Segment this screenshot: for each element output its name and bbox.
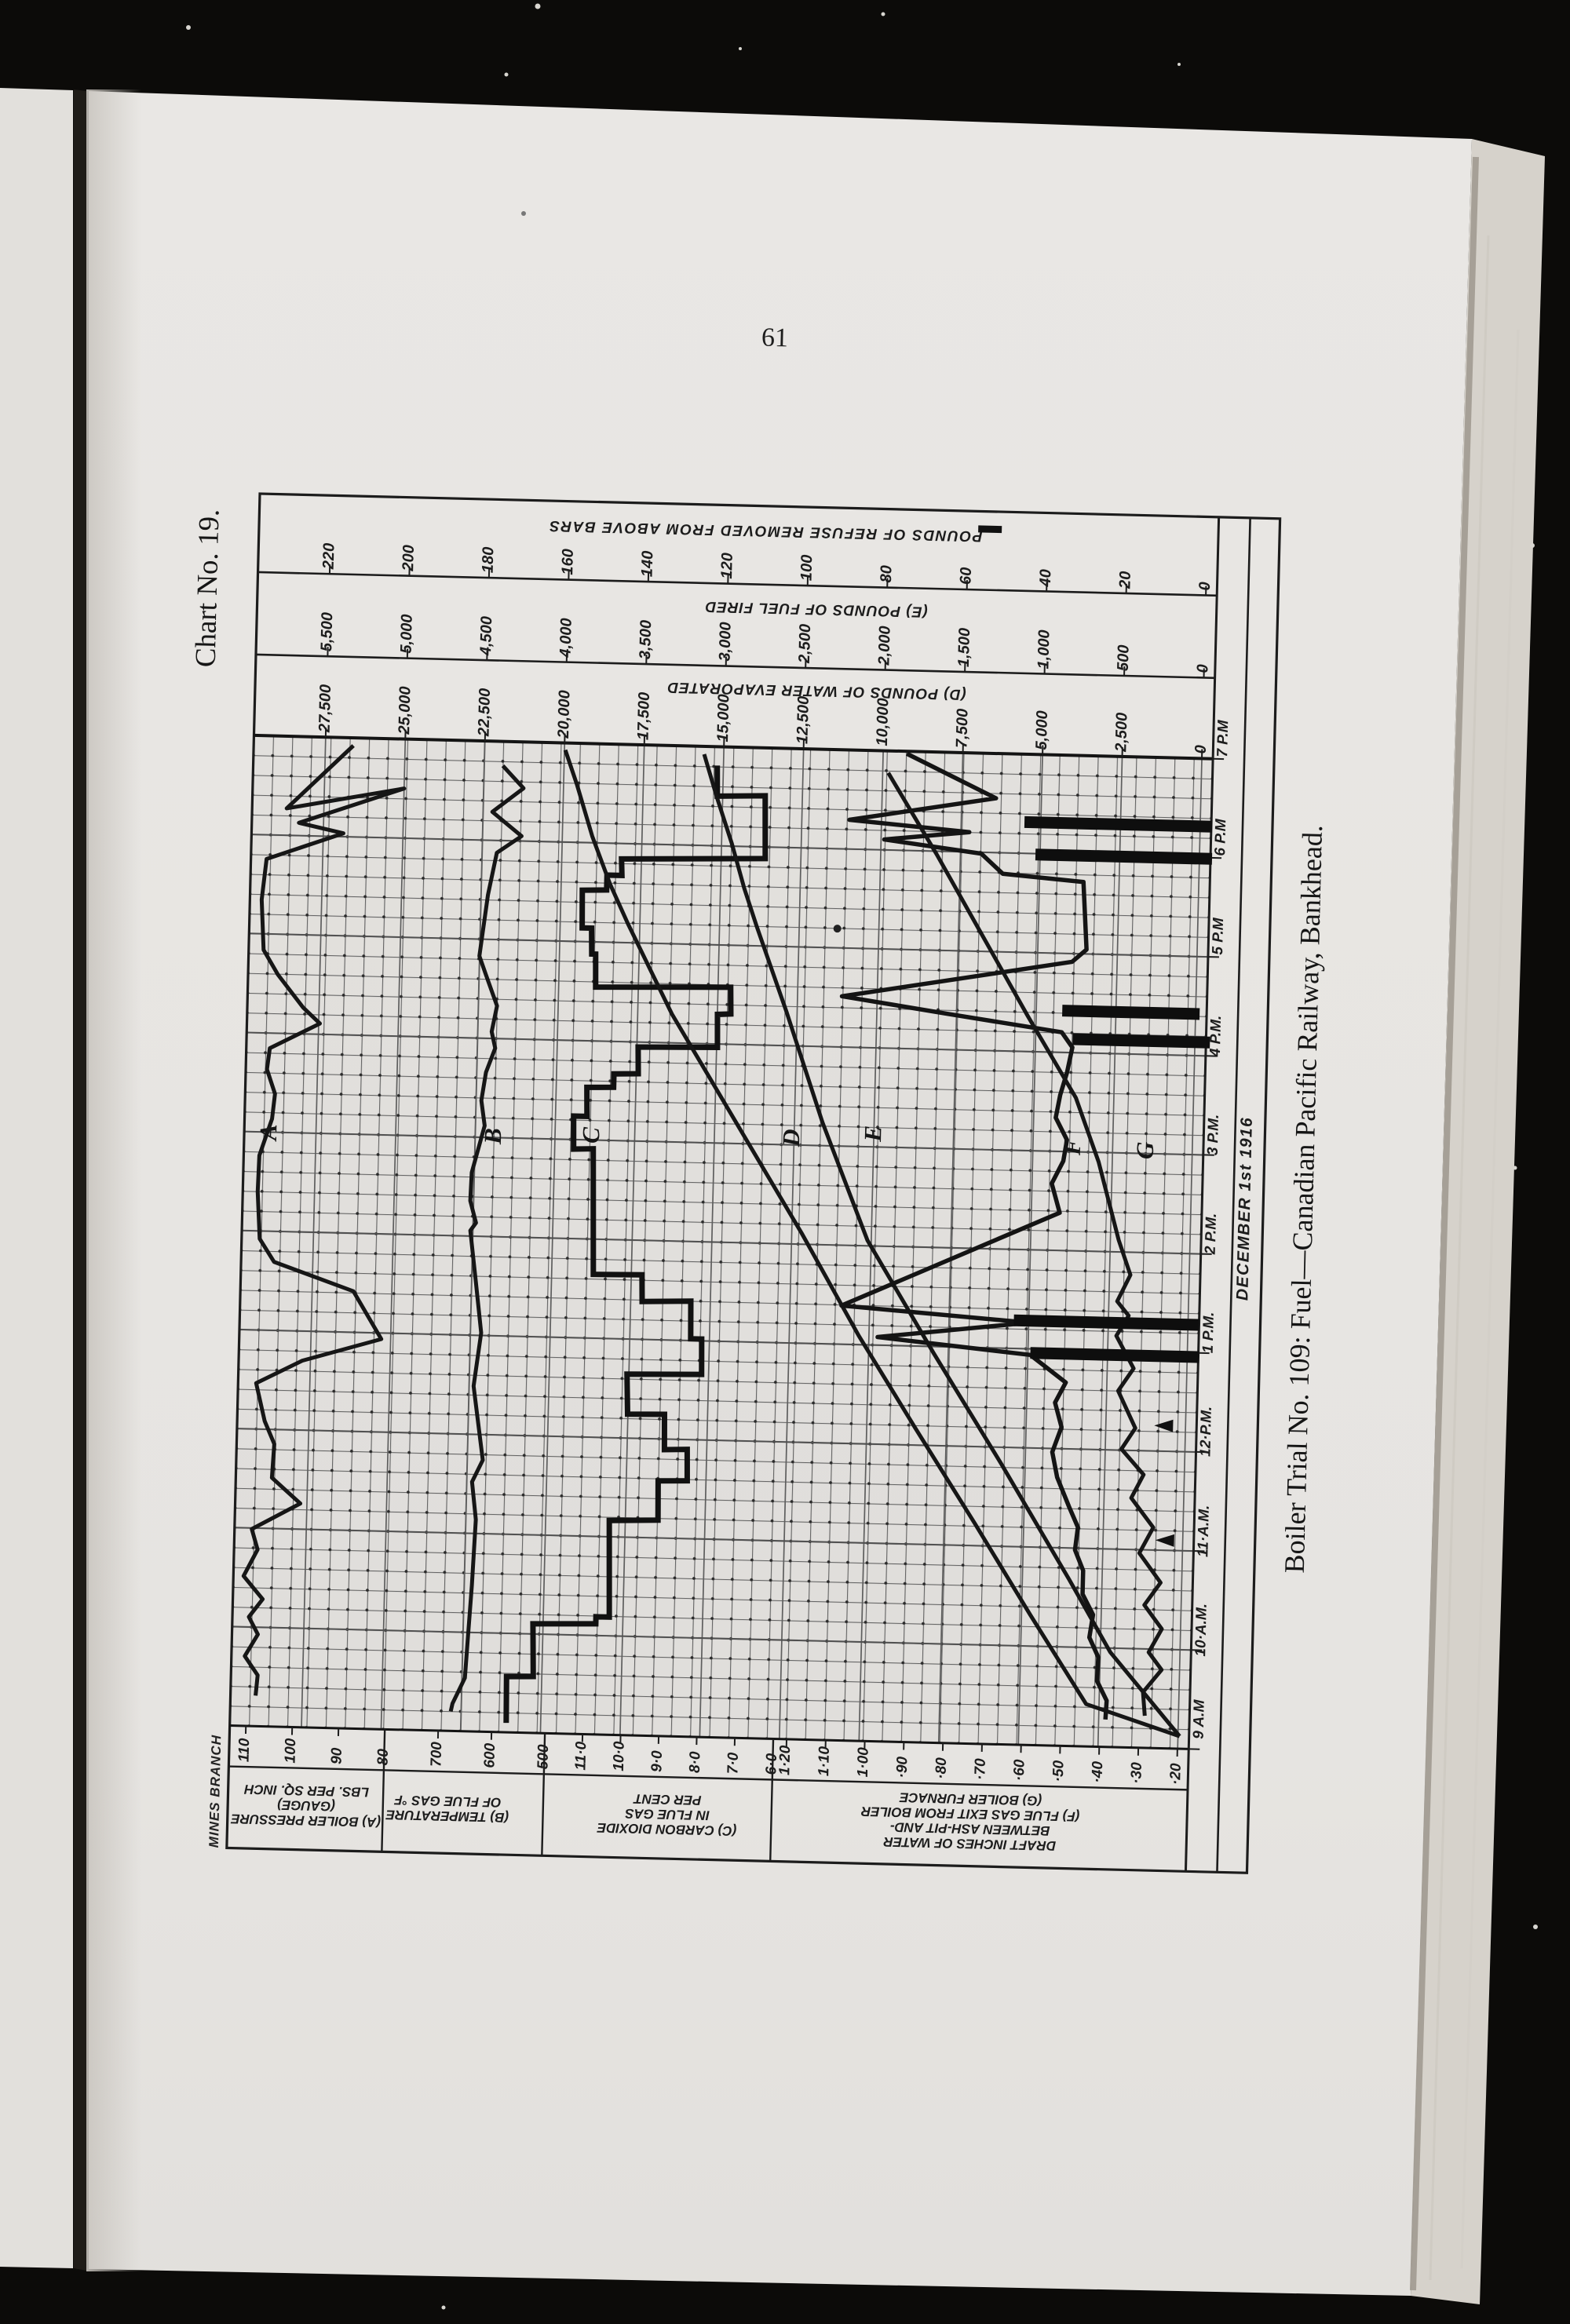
svg-text:F: F — [1058, 1138, 1086, 1156]
svg-text:80: 80 — [878, 565, 896, 583]
svg-text:17,500: 17,500 — [634, 692, 652, 741]
svg-text:10,000: 10,000 — [874, 698, 892, 746]
svg-text:10·A.M.: 10·A.M. — [1192, 1603, 1210, 1657]
svg-text:90: 90 — [328, 1747, 345, 1764]
svg-text:4,500: 4,500 — [477, 616, 495, 657]
svg-text:G: G — [1131, 1141, 1159, 1160]
svg-text:0: 0 — [1194, 664, 1211, 673]
svg-text:20,000: 20,000 — [555, 690, 574, 739]
svg-text:LBS. PER SQ. INCH: LBS. PER SQ. INCH — [243, 1782, 369, 1800]
svg-text:2,000: 2,000 — [875, 626, 893, 666]
svg-text:27,500: 27,500 — [316, 684, 335, 734]
svg-text:40: 40 — [1037, 569, 1055, 588]
svg-text:12,500: 12,500 — [794, 696, 812, 745]
svg-text:61: 61 — [761, 323, 789, 353]
svg-text:700: 700 — [428, 1742, 445, 1768]
svg-text:9·0: 9·0 — [648, 1750, 666, 1772]
svg-text:3,000: 3,000 — [716, 622, 734, 662]
svg-text:·90: ·90 — [894, 1756, 911, 1778]
svg-text:12·P.M.: 12·P.M. — [1197, 1406, 1215, 1458]
svg-text:C: C — [577, 1126, 605, 1144]
svg-text:MINES BRANCH: MINES BRANCH — [206, 1735, 225, 1848]
svg-text:140: 140 — [639, 550, 657, 577]
svg-text:5,000: 5,000 — [398, 614, 416, 654]
svg-text:5,500: 5,500 — [318, 612, 336, 652]
svg-text:600: 600 — [481, 1742, 498, 1768]
svg-text:·70: ·70 — [972, 1758, 989, 1780]
svg-text:1·10: 1·10 — [816, 1746, 833, 1776]
svg-text:6 P.M: 6 P.M — [1212, 818, 1229, 856]
svg-text:100: 100 — [282, 1738, 299, 1764]
svg-text:B: B — [479, 1128, 507, 1146]
svg-text:200: 200 — [400, 545, 418, 572]
svg-text:0: 0 — [1196, 582, 1214, 591]
svg-text:180: 180 — [480, 546, 498, 573]
svg-text:7·0: 7·0 — [725, 1752, 742, 1774]
svg-text:60: 60 — [957, 567, 975, 585]
svg-text:IN FLUE GAS: IN FLUE GAS — [624, 1806, 710, 1823]
svg-text:·30: ·30 — [1128, 1762, 1145, 1784]
svg-text:220: 220 — [320, 543, 338, 571]
svg-text:(GAUGE): (GAUGE) — [277, 1797, 335, 1814]
svg-text:A: A — [254, 1124, 283, 1143]
svg-text:1,500: 1,500 — [955, 628, 973, 668]
svg-text:1·00: 1·00 — [855, 1747, 872, 1778]
svg-text:2 P.M.: 2 P.M. — [1203, 1213, 1220, 1255]
svg-text:160: 160 — [559, 549, 577, 575]
svg-text:1·20: 1·20 — [776, 1745, 794, 1775]
svg-text:3,500: 3,500 — [637, 620, 655, 660]
svg-text:PER CENT: PER CENT — [633, 1791, 702, 1808]
svg-text:9 A.M: 9 A.M — [1191, 1698, 1208, 1739]
svg-text:500: 500 — [535, 1744, 552, 1770]
svg-text:1 P.M.: 1 P.M. — [1200, 1312, 1218, 1353]
svg-text:2,500: 2,500 — [1112, 713, 1130, 753]
svg-text:Chart No. 19.: Chart No. 19. — [190, 509, 226, 667]
svg-text:100: 100 — [798, 554, 816, 581]
svg-text:·20: ·20 — [1167, 1763, 1185, 1785]
svg-text:4,000: 4,000 — [557, 618, 575, 659]
svg-text:25,000: 25,000 — [396, 686, 414, 735]
svg-text:7,500: 7,500 — [953, 709, 971, 749]
svg-text:11·A.M.: 11·A.M. — [1195, 1505, 1213, 1557]
svg-text:8·0: 8·0 — [687, 1751, 704, 1773]
svg-text:·80: ·80 — [933, 1757, 950, 1779]
svg-text:110: 110 — [236, 1738, 254, 1762]
svg-text:0: 0 — [1192, 745, 1210, 754]
svg-text:20: 20 — [1116, 571, 1134, 589]
svg-text:5,000: 5,000 — [1033, 710, 1051, 750]
svg-text:1,000: 1,000 — [1035, 629, 1053, 669]
svg-text:·60: ·60 — [1011, 1759, 1028, 1781]
svg-text:7 P.M: 7 P.M — [1214, 719, 1232, 757]
svg-text:500: 500 — [1115, 644, 1133, 671]
svg-text:OF FLUE GAS °F: OF FLUE GAS °F — [393, 1793, 501, 1810]
svg-text:11·0: 11·0 — [572, 1741, 590, 1771]
svg-text:E: E — [859, 1126, 887, 1144]
svg-text:2,500: 2,500 — [796, 624, 814, 665]
svg-text:22,500: 22,500 — [476, 688, 495, 738]
svg-text:5 P.M: 5 P.M — [1210, 917, 1227, 955]
svg-text:·40: ·40 — [1090, 1760, 1107, 1782]
svg-text:D: D — [777, 1129, 805, 1147]
svg-text:120: 120 — [718, 553, 736, 579]
svg-text:4 P.M.: 4 P.M. — [1207, 1015, 1225, 1057]
svg-text:·50: ·50 — [1050, 1760, 1068, 1782]
svg-text:15,000: 15,000 — [714, 694, 732, 742]
svg-text:10·0: 10·0 — [611, 1741, 628, 1771]
svg-text:80: 80 — [374, 1749, 392, 1766]
svg-text:3 P.M.: 3 P.M. — [1205, 1114, 1222, 1155]
